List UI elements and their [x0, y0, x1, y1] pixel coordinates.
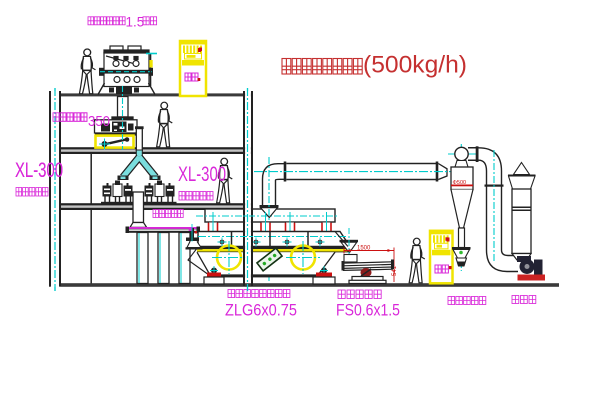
- svg-text:1500: 1500: [357, 246, 371, 252]
- svg-text:350: 350: [88, 113, 110, 130]
- svg-text:1.5: 1.5: [126, 15, 145, 30]
- svg-text:Φ500: Φ500: [453, 180, 467, 186]
- svg-text:ZLG6x0.75: ZLG6x0.75: [225, 301, 297, 320]
- svg-text:XL-300: XL-300: [15, 159, 63, 182]
- svg-text:FS0.6x1.5: FS0.6x1.5: [336, 301, 400, 320]
- svg-text:(500kg/h): (500kg/h): [363, 52, 467, 79]
- svg-text:XL-300: XL-300: [178, 163, 226, 186]
